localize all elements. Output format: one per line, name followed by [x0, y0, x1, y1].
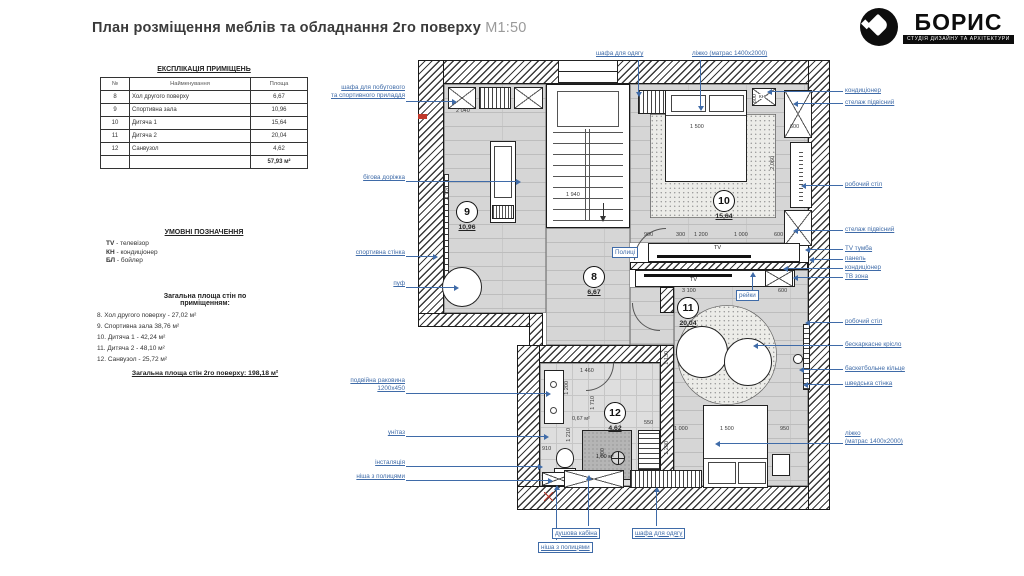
annotation-panel: панель: [845, 255, 1015, 263]
annotation-hanging-shelf: стелаж підвісний: [845, 226, 1015, 234]
bed-room10: [665, 90, 747, 182]
wall-area-item: 10. Дитяча 1 - 42,24 м²: [97, 334, 315, 341]
window: [558, 60, 618, 84]
annotation-shelves: Полиці: [612, 247, 638, 258]
bean-bag-chair: [676, 326, 728, 378]
legend-item-tv: TV - телевізор: [106, 240, 308, 247]
table-row: 8 Хол другого поверху 6,67: [101, 91, 308, 104]
leader-line: [588, 480, 589, 526]
leader-line: [406, 256, 433, 257]
wardrobe-shelves: [638, 430, 660, 470]
annotation-double-sink: подвійна раковина 1200х450: [295, 377, 405, 393]
work-desk: [790, 142, 812, 208]
table-row: 10 Дитяча 1 15,64: [101, 117, 308, 130]
annotation-niche-shelves: ніша з полицями: [295, 473, 405, 481]
red-wall-mark: [418, 114, 427, 119]
tv-label: TV: [714, 245, 721, 251]
plan-scale: М1:50: [485, 20, 526, 36]
leader-line: [810, 322, 843, 323]
wall-areas-title: Загальна площа стін по приміщенням:: [95, 293, 315, 307]
dimension-label: 1 000: [674, 426, 688, 432]
bed-room11: [703, 405, 768, 488]
red-cross-mark: [544, 492, 553, 501]
leader-line: [806, 185, 843, 186]
treadmill: [490, 141, 516, 223]
dimension-label: 910: [542, 446, 551, 452]
table-header-row: № Найменування Площа: [101, 78, 308, 91]
dimension-label: 2 040: [456, 108, 470, 114]
wall-corner: [529, 313, 543, 349]
explication-table: № Найменування Площа 8 Хол другого повер…: [100, 77, 308, 169]
row-num: 8: [101, 91, 130, 104]
pillow: [738, 462, 766, 484]
stair-arrow-head: [600, 216, 606, 222]
shower-cabin: [564, 470, 624, 488]
row-num: 12: [101, 143, 130, 156]
leader-line: [406, 480, 548, 481]
annotation-wardrobe: шафа для одягу: [596, 50, 686, 58]
leader-line: [772, 91, 843, 92]
hanging-shelf-unit: [784, 90, 812, 138]
logo-subtitle: СТУДІЯ ДИЗАЙНУ ТА АРХІТЕКТУРИ: [903, 35, 1014, 44]
room-tag-11: 11 20,04: [675, 297, 701, 327]
dimension-label: 1,00 м²: [596, 454, 614, 460]
annotation-work-desk: робочий стіл: [845, 318, 1015, 326]
table-row: 12 Санвузол 4,62: [101, 143, 308, 156]
row-area: 20,04: [251, 130, 308, 143]
dimension-label: 2 060: [770, 156, 776, 170]
explication-block: ЕКСПЛІКАЦІЯ ПРИМІЩЕНЬ № Найменування Пло…: [100, 66, 308, 169]
annotation-work-desk: робочий стіл: [845, 181, 1015, 189]
leader-line: [798, 277, 843, 278]
dimension-label: 950: [780, 426, 789, 432]
staircase: [546, 84, 630, 228]
legend-item-bl: БЛ - бойлер: [106, 257, 308, 264]
row-area: 4,62: [251, 143, 308, 156]
annotation-swedish-wall: шведська стінка: [845, 380, 1015, 388]
leader-line: [804, 369, 843, 370]
room-tag-10: 10 15,64: [711, 190, 737, 220]
pen-nib-icon: [860, 8, 898, 46]
table-row: 11 Дитяча 2 20,04: [101, 130, 308, 143]
annotation-installation: інсталяція: [295, 459, 405, 467]
hanging-shelf-unit: [784, 210, 812, 246]
leader-line: [798, 230, 843, 231]
tv-panel: [644, 274, 732, 277]
leader-line: [406, 287, 454, 288]
dimension-label: 1 200: [564, 381, 570, 395]
logo-name: БОРИС: [915, 11, 1003, 34]
leader-line: [406, 393, 546, 394]
room-tag-8: 8 6,67: [581, 266, 607, 296]
stair-landing: [557, 91, 619, 127]
wall-areas-total: Загальна площа стін 2го поверху: 198,18 …: [95, 370, 315, 377]
dimension-label: 800: [752, 94, 758, 103]
dimension-label: 600: [778, 288, 787, 294]
dimension-label: 1 200: [694, 232, 708, 238]
basketball-hoop: [793, 354, 803, 364]
dimension-label: 300: [676, 232, 685, 238]
row-num: 9: [101, 104, 130, 117]
row-name: Спортивна зала: [130, 104, 251, 117]
annotation-wardrobe: шафа для одягу: [632, 528, 685, 539]
wall-areas-block: Загальна площа стін по приміщенням: 8. Х…: [95, 293, 315, 377]
annotation-conditioner: кондиціонер: [845, 87, 1015, 95]
dimension-label: 3 100: [682, 288, 696, 294]
wall-area-item: 9. Спортивна зала 38,76 м²: [97, 323, 315, 330]
room-tag-9: 9 10,96: [454, 201, 480, 231]
double-sink: [544, 370, 564, 424]
legend-title: УМОВНІ ПОЗНАЧЕННЯ: [100, 229, 308, 236]
col-name: Найменування: [130, 78, 251, 91]
wardrobe-bottom: [630, 470, 702, 488]
gym-cabinet: [514, 87, 543, 109]
legend-block: УМОВНІ ПОЗНАЧЕННЯ TV - телевізор КН - ко…: [100, 229, 308, 266]
annotation-rails: рейки: [736, 290, 759, 301]
tv-panel: [657, 255, 751, 258]
dimension-label: 1 940: [566, 192, 580, 198]
annotation-shower-cabin: душова кабіна: [552, 528, 600, 539]
dimension-label: 1 000: [734, 232, 748, 238]
legend-item-kn: КН - кондиціонер: [106, 249, 308, 256]
leader-line: [406, 466, 538, 467]
wall-bathroom-top: [517, 345, 674, 363]
wall-bottom: [517, 486, 830, 510]
annotation-toilet: унітаз: [295, 429, 405, 437]
page-title: План розміщення меблів та обладнання 2го…: [92, 20, 527, 36]
wall-bathroom-room11: [660, 345, 674, 486]
annotation-tv-zone: ТВ зона: [845, 273, 1015, 281]
explication-title: ЕКСПЛІКАЦІЯ ПРИМІЩЕНЬ: [100, 66, 308, 73]
dimension-label: 1 130: [664, 351, 670, 365]
wall-area-item: 11. Дитяча 2 - 48,10 м²: [97, 345, 315, 352]
dimension-label: 1 500: [720, 426, 734, 432]
annotation-hanging-shelf: стелаж підвісний: [845, 99, 1015, 107]
annotation-bed-room10: ліжко (матрас 1400х2000): [692, 50, 817, 58]
dimension-label: 1 210: [566, 428, 572, 442]
dimension-label: 1 500: [690, 124, 704, 130]
leader-line: [814, 259, 843, 260]
dimension-label: 600: [790, 124, 799, 130]
pillow: [708, 462, 736, 484]
gym-cabinet-shelves: [479, 87, 511, 109]
room-tag-12: 12 4,62: [602, 402, 628, 432]
row-name: Хол другого поверху: [130, 91, 251, 104]
annotation-sport-wall: спортивна стінка: [295, 249, 405, 257]
row-num: 10: [101, 117, 130, 130]
wall-top: [418, 60, 830, 84]
leader-line: [656, 492, 657, 526]
swedish-wall-ladder: [803, 324, 810, 390]
plan-title: План розміщення меблів та обладнання 2го…: [92, 20, 481, 36]
leader-line: [798, 103, 843, 104]
annotation-treadmill: бігова доріжка: [295, 174, 405, 182]
leader-line: [638, 60, 639, 92]
tv-label: TV: [690, 277, 697, 283]
row-num: 11: [101, 130, 130, 143]
annotation-basketball-hoop: баскетбольне кільце: [845, 365, 1015, 373]
col-num: №: [101, 78, 130, 91]
annotation-conditioner: кондиціонер: [845, 264, 1015, 272]
pillow: [709, 95, 744, 112]
annotation-bed-room11: ліжко (матрас 1400х2000): [845, 430, 1015, 446]
dimension-label: 1 710: [590, 396, 596, 410]
dimension-label: 550: [644, 420, 653, 426]
table-row: 9 Спортивна зала 10,96: [101, 104, 308, 117]
annotation-pouf: пуф: [295, 280, 405, 288]
wall-room9-bottom: [418, 313, 543, 327]
leader-line: [700, 60, 701, 106]
nightstand: [772, 454, 790, 476]
row-name: Санвузол: [130, 143, 251, 156]
total-area: 57,93 м²: [251, 156, 308, 169]
leader-line: [808, 384, 843, 385]
leader-line: [406, 181, 516, 182]
dimension-label: 1 200: [664, 441, 670, 455]
wall-area-item: 8. Хол другого поверху - 27,02 м²: [97, 312, 315, 319]
company-logo: БОРИС СТУДІЯ ДИЗАЙНУ ТА АРХІТЕКТУРИ: [860, 8, 1014, 46]
row-name: Дитяча 1: [130, 117, 251, 130]
wall-hall-room11: [660, 287, 674, 313]
leader-line: [406, 101, 452, 102]
leader-line: [752, 277, 753, 290]
dimension-label: 900: [644, 232, 653, 238]
row-name: Дитяча 2: [130, 130, 251, 143]
wall-tv-divider: [630, 262, 808, 270]
leader-line: [406, 436, 544, 437]
air-conditioner-box: [765, 270, 793, 287]
row-area: 10,96: [251, 104, 308, 117]
stair-arrow: [603, 203, 604, 217]
leader-line: [758, 345, 843, 346]
row-area: 15,64: [251, 117, 308, 130]
stair-rail: [585, 129, 590, 221]
leader-line: [810, 249, 843, 250]
dimension-label: 4 720: [445, 186, 451, 200]
leader-line: [720, 443, 843, 444]
annotation-niche-shelves: ніша з полицями: [538, 542, 593, 553]
dimension-label: 0,67 м²: [572, 416, 590, 422]
dimension-label: 600: [774, 232, 783, 238]
annotation-bean-bag: бескаркасне крісло: [845, 341, 1015, 349]
table-total-row: 57,93 м²: [101, 156, 308, 169]
dimension-label: 1 460: [580, 368, 594, 374]
wall-area-item: 12. Санвузол - 25,72 м²: [97, 356, 315, 363]
annotation-tv-stand: TV тумба: [845, 245, 1015, 253]
annotation-gym-cabinet: шафа для побутового та спортивного прила…: [295, 84, 405, 100]
floor-plan: КН TV TV 9 10,96 1: [418, 56, 830, 510]
tv-stand-room10: [648, 243, 800, 262]
leader-line: [788, 268, 843, 269]
